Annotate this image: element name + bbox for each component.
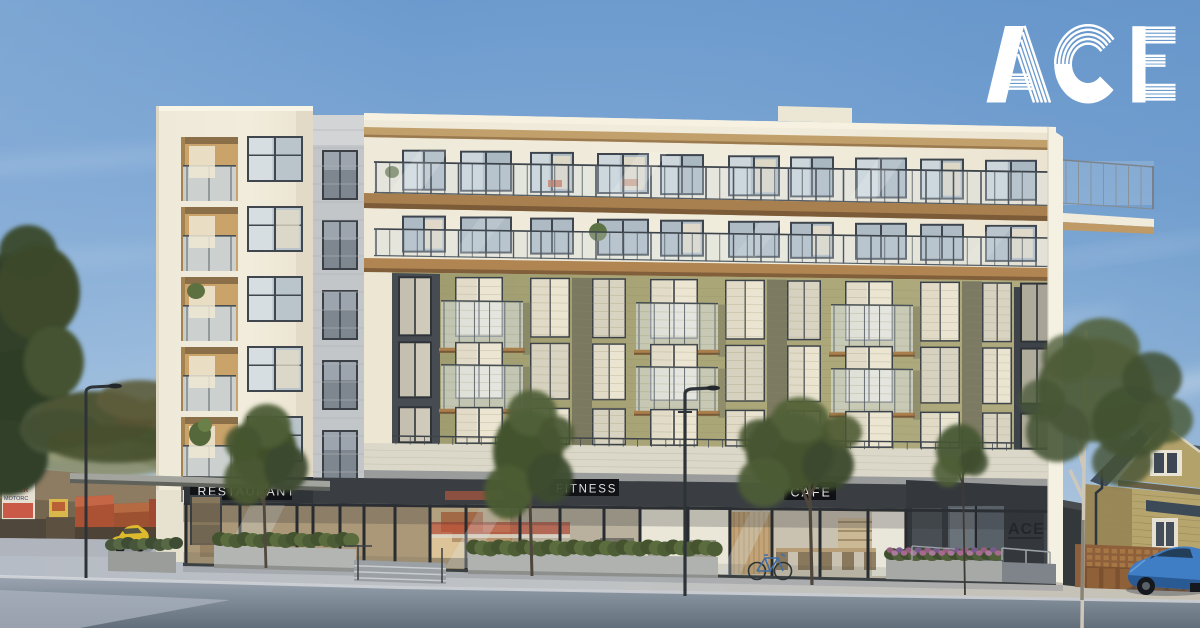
svg-text:MOTORC: MOTORC bbox=[4, 496, 28, 502]
